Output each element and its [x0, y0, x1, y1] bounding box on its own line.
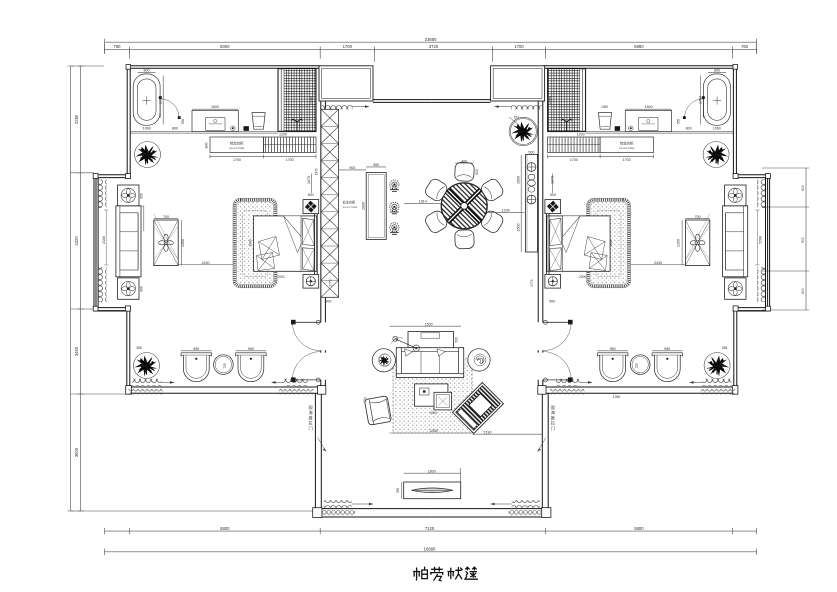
- svg-text:371: 371: [514, 116, 520, 120]
- svg-text:1200: 1200: [577, 132, 585, 136]
- svg-text:1750: 1750: [699, 96, 703, 104]
- svg-text:800: 800: [204, 143, 208, 149]
- svg-text:1670: 1670: [307, 176, 311, 184]
- svg-text:600: 600: [139, 286, 143, 292]
- svg-text:700: 700: [695, 215, 701, 219]
- svg-text:900: 900: [349, 166, 355, 170]
- svg-text:800: 800: [144, 69, 150, 73]
- svg-text:2000: 2000: [310, 96, 314, 104]
- svg-text:2000: 2000: [277, 275, 284, 279]
- svg-text:玄关台柜: 玄关台柜: [343, 200, 357, 205]
- svg-text:Accent Table: Accent Table: [619, 146, 635, 150]
- svg-text:1370: 1370: [315, 168, 319, 175]
- svg-text:350: 350: [396, 488, 400, 494]
- svg-text:500: 500: [325, 299, 331, 303]
- svg-text:365: 365: [722, 346, 728, 350]
- svg-text:1500: 1500: [516, 224, 520, 232]
- svg-text:1060: 1060: [143, 126, 151, 130]
- svg-text:2779: 2779: [329, 279, 333, 286]
- svg-text:780: 780: [114, 44, 122, 49]
- svg-text:1234: 1234: [502, 209, 510, 213]
- svg-text:800: 800: [172, 126, 178, 130]
- svg-text:2430: 2430: [202, 261, 210, 265]
- svg-text:600: 600: [139, 193, 143, 199]
- svg-text:1060: 1060: [429, 411, 436, 415]
- svg-text:5880: 5880: [634, 44, 644, 49]
- svg-text:500: 500: [308, 193, 314, 197]
- svg-text:725: 725: [223, 363, 227, 369]
- svg-text:600: 600: [801, 288, 805, 294]
- svg-text:1350: 1350: [677, 239, 681, 247]
- svg-text:1500: 1500: [516, 176, 520, 184]
- svg-text:1750: 1750: [159, 96, 163, 104]
- svg-text:1060: 1060: [713, 126, 721, 130]
- svg-text:950: 950: [610, 347, 616, 351]
- svg-text:2000: 2000: [579, 275, 586, 279]
- svg-text:760: 760: [741, 44, 749, 49]
- svg-text:1350: 1350: [181, 239, 185, 247]
- svg-text:1200: 1200: [279, 132, 287, 136]
- svg-text:500: 500: [549, 299, 555, 303]
- svg-text:1700: 1700: [286, 158, 294, 162]
- svg-text:1500: 1500: [425, 322, 433, 326]
- svg-text:800: 800: [714, 69, 720, 73]
- svg-text:590: 590: [373, 163, 379, 167]
- svg-text:5800: 5800: [634, 526, 644, 531]
- svg-text:1400: 1400: [609, 239, 613, 246]
- svg-text:2280: 2280: [74, 114, 79, 124]
- svg-text:7120: 7120: [425, 526, 435, 531]
- svg-text:700: 700: [163, 215, 169, 219]
- svg-text:500: 500: [455, 337, 459, 343]
- svg-text:Accent Table: Accent Table: [343, 205, 358, 209]
- svg-text:23680: 23680: [425, 37, 437, 42]
- svg-text:3600: 3600: [74, 447, 79, 457]
- svg-text:1700: 1700: [570, 158, 578, 162]
- svg-text:950: 950: [664, 347, 670, 351]
- svg-text:725: 725: [635, 363, 639, 369]
- svg-text:1400: 1400: [249, 239, 253, 246]
- svg-text:5800: 5800: [220, 526, 230, 531]
- svg-text:1500: 1500: [645, 105, 653, 109]
- svg-text:Accent Table: Accent Table: [229, 146, 245, 150]
- svg-text:800: 800: [686, 126, 692, 130]
- svg-text:950: 950: [248, 347, 254, 351]
- svg-text:2779: 2779: [530, 279, 534, 286]
- svg-text:6000: 6000: [220, 44, 230, 49]
- svg-text:1670: 1670: [551, 176, 555, 184]
- svg-text:1390: 1390: [613, 395, 621, 399]
- svg-text:950: 950: [193, 347, 199, 351]
- svg-text:2000: 2000: [548, 96, 552, 104]
- svg-text:365: 365: [136, 346, 142, 350]
- svg-text:550: 550: [181, 119, 185, 125]
- svg-text:500: 500: [550, 193, 556, 197]
- svg-text:550: 550: [677, 119, 681, 125]
- svg-text:梳妆台柜: 梳妆台柜: [620, 140, 634, 145]
- svg-text:900: 900: [801, 237, 805, 243]
- svg-text:1500: 1500: [211, 105, 219, 109]
- svg-text:1700: 1700: [343, 44, 353, 49]
- svg-text:2100: 2100: [102, 236, 106, 244]
- svg-text:2430: 2430: [654, 261, 662, 265]
- svg-text:1700: 1700: [514, 44, 524, 49]
- svg-text:1700: 1700: [623, 158, 631, 162]
- svg-text:3460: 3460: [74, 346, 79, 356]
- svg-text:1814: 1814: [419, 200, 427, 204]
- svg-text:梳妆台柜: 梳妆台柜: [230, 140, 244, 145]
- svg-text:400: 400: [461, 159, 467, 163]
- svg-text:600: 600: [801, 185, 805, 191]
- svg-text:500: 500: [528, 151, 534, 155]
- svg-text:3720: 3720: [429, 44, 439, 49]
- svg-text:1600: 1600: [428, 469, 436, 473]
- svg-text:2400: 2400: [430, 429, 438, 433]
- svg-text:4320: 4320: [74, 236, 79, 246]
- svg-text:2190: 2190: [484, 430, 492, 434]
- svg-text:1700: 1700: [233, 158, 241, 162]
- svg-text:612: 612: [475, 169, 479, 175]
- svg-text:1350: 1350: [601, 105, 608, 109]
- svg-text:16680: 16680: [424, 547, 436, 552]
- svg-text:2000: 2000: [361, 202, 365, 210]
